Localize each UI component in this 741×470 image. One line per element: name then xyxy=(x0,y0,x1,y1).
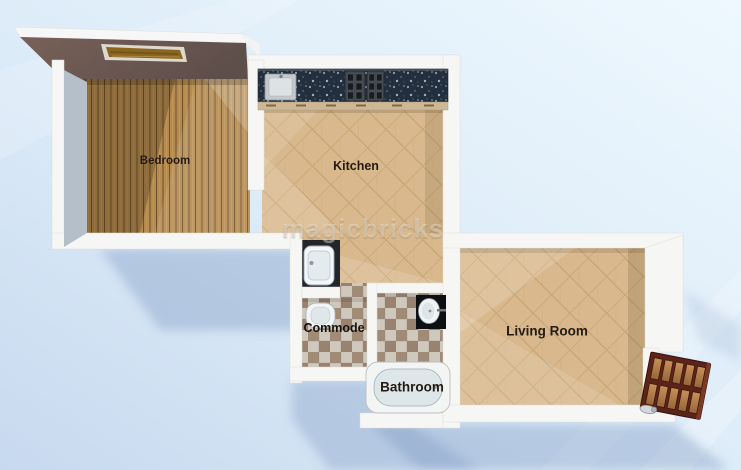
bedroom-wall-inner-face xyxy=(64,70,87,247)
roof-window-icon xyxy=(101,44,187,62)
living-top-wall xyxy=(443,233,683,248)
entry-door xyxy=(639,352,711,424)
nook-wall xyxy=(302,287,340,298)
kitchen-cabinets xyxy=(258,102,448,110)
living-right-wall xyxy=(645,235,683,352)
floor-plan-image: Bedroom Kitchen Commode Bathroom Living … xyxy=(0,0,741,470)
commode-washbasin xyxy=(304,246,334,285)
stove-icon xyxy=(345,71,384,101)
kitchen-top-wall xyxy=(248,55,460,69)
bedroom-bottom-wall xyxy=(52,233,302,249)
bathroom-washbasin xyxy=(416,295,446,329)
kitchen-sink xyxy=(265,74,296,100)
bathtub-icon xyxy=(366,362,450,413)
toilet-icon xyxy=(306,303,335,328)
bedroom-floor xyxy=(64,79,250,233)
commode-left-wall xyxy=(290,233,302,383)
floor-plan-graphic xyxy=(0,0,741,470)
living-room-floor xyxy=(457,248,648,405)
bedroom-left-wall xyxy=(52,60,64,249)
